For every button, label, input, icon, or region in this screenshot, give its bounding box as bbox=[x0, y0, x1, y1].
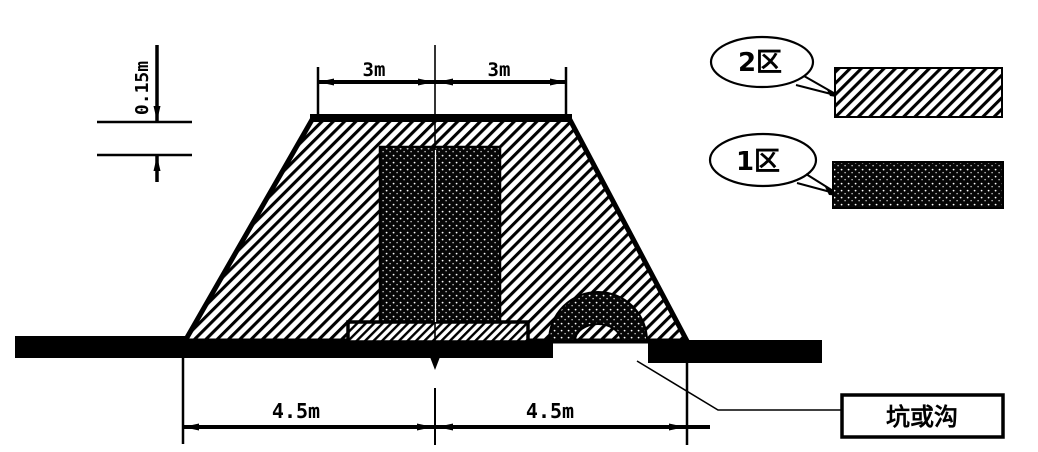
arrow-icon bbox=[154, 156, 161, 171]
dim-label-top-left: 3m bbox=[363, 59, 386, 81]
zone1-label: 1区 bbox=[736, 147, 780, 177]
pit-leader-line bbox=[637, 361, 842, 410]
arrow-icon bbox=[154, 106, 161, 121]
arrow-icon bbox=[183, 424, 199, 431]
dim-label-bottom-right: 4.5m bbox=[526, 399, 574, 423]
arrow-icon bbox=[550, 79, 566, 86]
dim-label-bottom-left: 4.5m bbox=[272, 399, 320, 423]
base-strip bbox=[348, 322, 528, 342]
dim-label-top-right: 3m bbox=[488, 59, 511, 81]
pit-callout-label: 坑或沟 bbox=[886, 403, 958, 431]
arrow-icon bbox=[417, 424, 433, 431]
dim-label-thickness: 0.15m bbox=[132, 61, 153, 115]
zone1-swatch bbox=[833, 162, 1003, 208]
centerline-arrow-icon bbox=[430, 357, 440, 370]
zone1-core-region bbox=[380, 147, 500, 327]
zone2-label: 2区 bbox=[738, 48, 782, 78]
arrow-icon bbox=[669, 424, 685, 431]
arrow-icon bbox=[418, 79, 434, 86]
zone2-swatch bbox=[835, 68, 1002, 117]
diagram-canvas: 3m 3m 0.15m 4.5m 4.5m 2区 1区 坑或沟 bbox=[0, 0, 1038, 452]
arrow-icon bbox=[437, 424, 453, 431]
arrow-icon bbox=[318, 79, 334, 86]
embankment-cross-section-diagram: 3m 3m 0.15m 4.5m 4.5m 2区 1区 坑或沟 bbox=[0, 0, 1038, 452]
arrow-icon bbox=[437, 79, 453, 86]
